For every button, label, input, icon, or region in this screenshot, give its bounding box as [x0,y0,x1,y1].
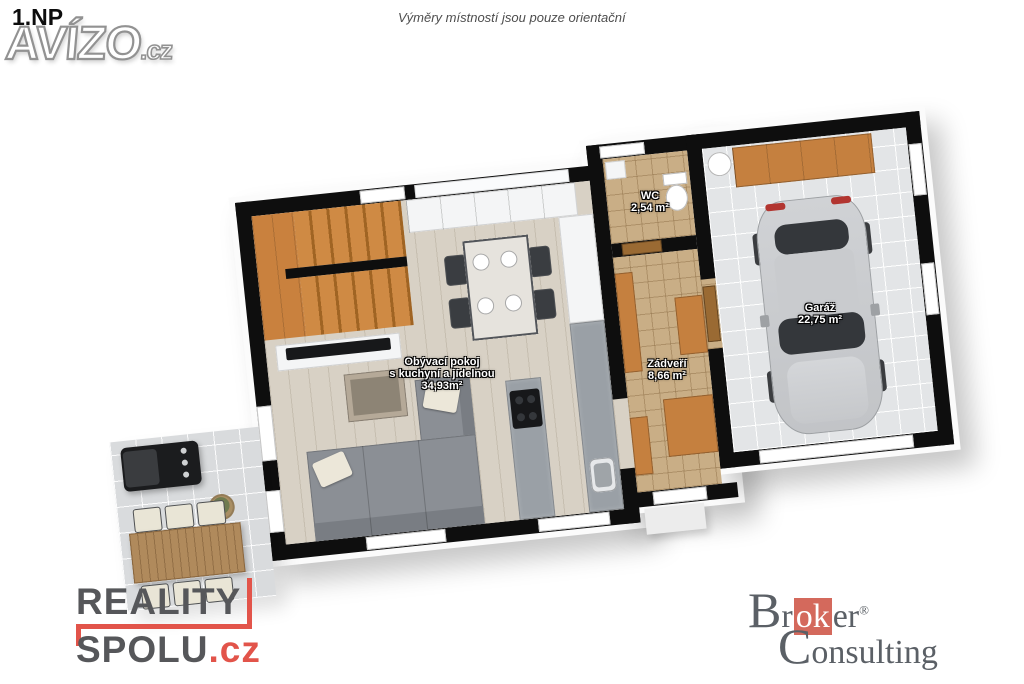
terrace-chair [196,500,226,527]
room-label-living: Obývací pokoj s kuchyní a jídelnou 34,93… [357,356,527,392]
cooktop [509,388,543,429]
cooktop-burner [527,395,536,404]
floor-label: 1.NP [12,4,63,31]
cooktop-burner [529,412,538,421]
broker-consulting-logo: Broker® Consulting [748,592,938,671]
avizo-tld: .cz [139,35,173,65]
cooktop-burner [517,413,526,422]
staircase-lower-flight [300,266,414,336]
disclaimer-text: Výměry místností jsou pouze orientační [398,10,626,25]
room-area: 2,54 m² [605,202,695,214]
car-hood [786,355,870,425]
room-area: 22,75 m² [772,314,868,326]
grill-lid [122,449,160,488]
room-area: 34,93m² [357,380,527,392]
dining-table [462,235,538,341]
room-label-hall: Zádveří 8,66 m² [622,358,712,382]
grill-knob [183,471,190,478]
reality-word: REALITY [76,582,241,622]
registered-mark: ® [859,603,869,618]
sofa-main [306,434,484,541]
room-name: Zádveří [622,358,712,370]
room-name: Obývací pokoj [357,356,527,368]
spolu-tld: .cz [208,629,260,670]
logo-red-line-right [247,578,252,624]
car-mirror [870,303,880,316]
terrace-chair [132,506,162,533]
grill-knob [180,447,187,454]
room-name: Garáž [772,302,868,314]
grill [120,440,202,492]
staircase [251,201,413,341]
kitchen-sink-basin [593,462,612,488]
hall-wardrobe [663,394,719,457]
floorplan-canvas: Obývací pokoj s kuchyní a jídelnou 34,93… [0,0,1024,684]
grill-knob [182,459,189,466]
car-mirror [760,315,770,328]
kitchen-sink [589,457,617,493]
cooktop-burner [515,396,524,405]
terrace-chair [164,503,194,530]
room-subtitle: s kuchyní a jídelnou [357,368,527,380]
entrance-porch [644,503,706,535]
spolu-text: SPOLU [76,629,208,670]
spolu-word: SPOLU.cz [76,630,261,670]
wc-sink [605,160,627,180]
room-label-garage: Garáž 22,75 m² [772,302,868,326]
consulting-word: Consulting [778,628,938,671]
room-label-wc: WC 2,54 m² [605,190,695,214]
room-name: WC [605,190,695,202]
room-area: 8,66 m² [622,370,712,382]
